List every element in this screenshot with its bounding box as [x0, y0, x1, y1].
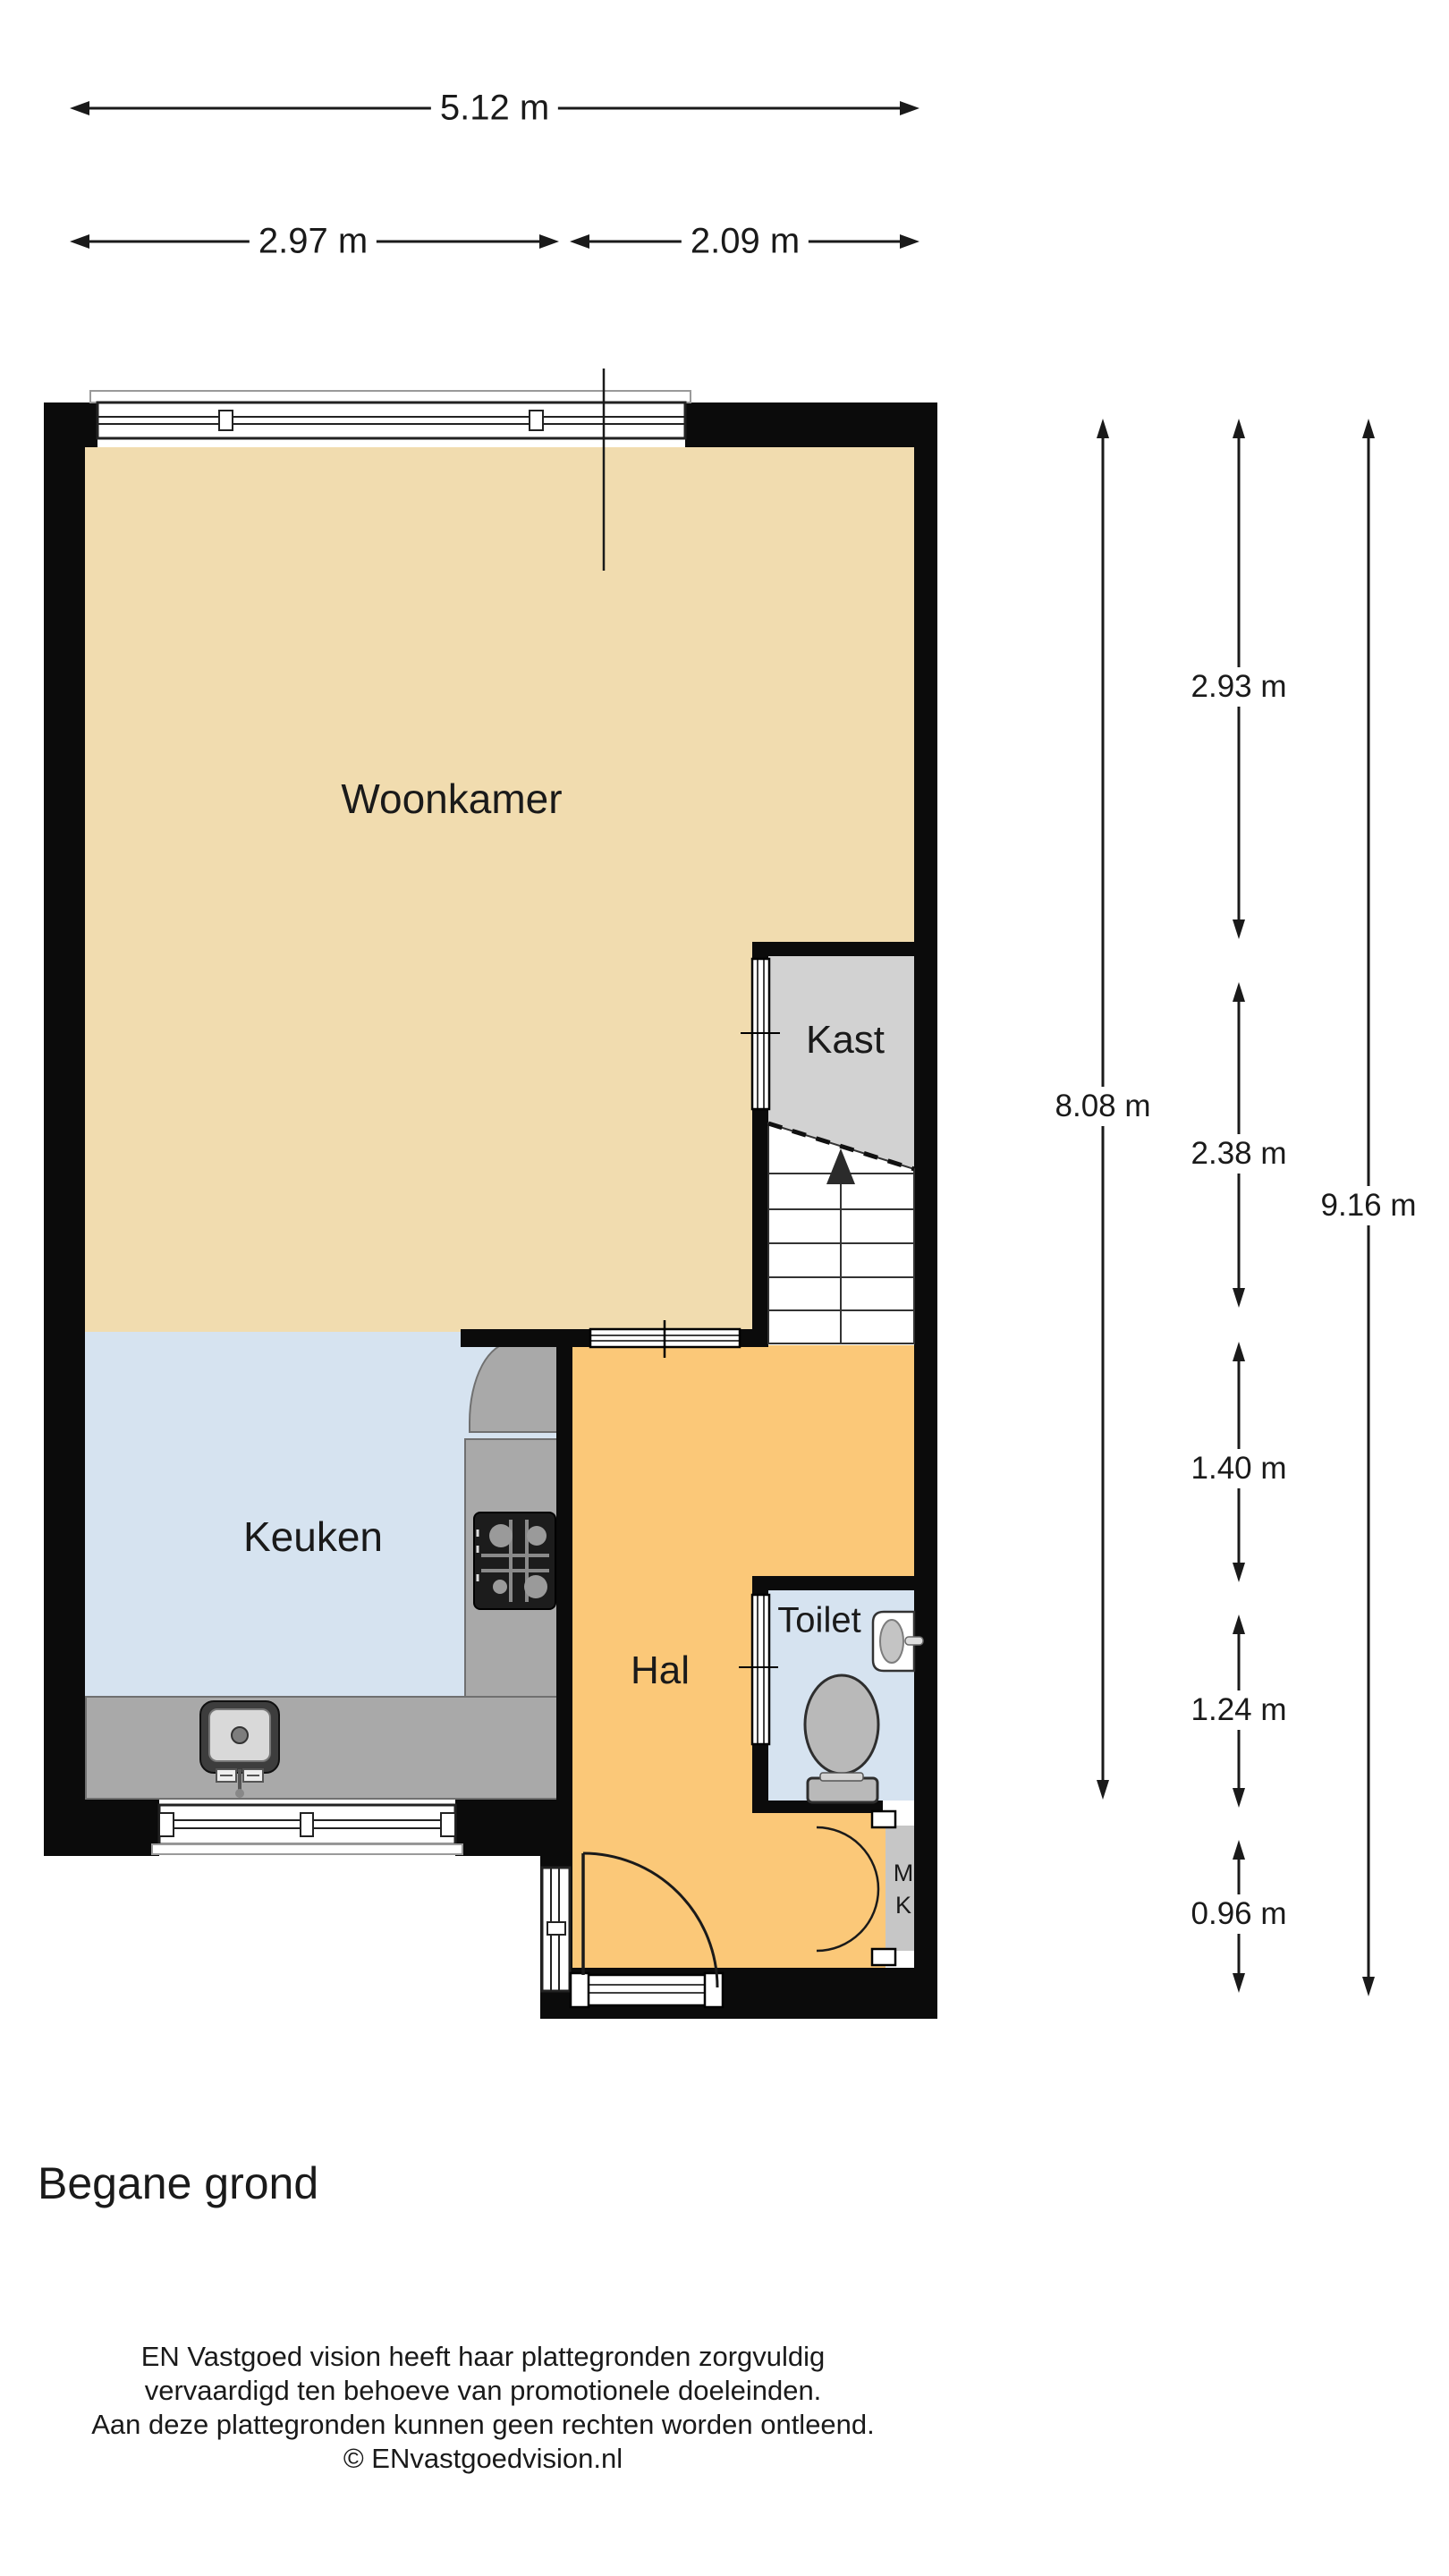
toilet-label: Toilet — [777, 1601, 860, 1641]
meterkast-label-k: K — [894, 1889, 914, 1921]
disclaimer-line-2: vervaardigd ten behoeve van promotionele… — [0, 2374, 966, 2408]
dim-height-total-outer: 9.16 m — [1312, 1186, 1426, 1225]
hal-label: Hal — [631, 1648, 690, 1693]
keuken-label: Keuken — [243, 1513, 383, 1561]
dim-seg-140: 1.40 m — [1182, 1449, 1296, 1488]
dim-top-left: 2.97 m — [250, 220, 377, 264]
kitchen-sink-icon — [200, 1701, 279, 1798]
floor-title: Begane grond — [38, 2157, 318, 2209]
dim-seg-238: 2.38 m — [1182, 1134, 1296, 1174]
entry-side-window — [542, 1868, 570, 1991]
woonkamer-label: Woonkamer — [341, 775, 562, 823]
front-door — [571, 1853, 723, 2007]
disclaimer-line-3: Aan deze plattegronden kunnen geen recht… — [0, 2408, 966, 2442]
dim-top-right: 2.09 m — [682, 220, 809, 264]
woonkamer-hal-opening — [590, 1320, 740, 1358]
stove-icon — [474, 1513, 555, 1609]
kitchen-bottom-window — [152, 1805, 462, 1854]
dim-seg-124: 1.24 m — [1182, 1690, 1296, 1730]
disclaimer-line-4: © ENvastgoedvision.nl — [0, 2442, 966, 2476]
meterkast-label: M K — [894, 1857, 914, 1921]
dim-seg-096: 0.96 m — [1182, 1894, 1296, 1934]
kast-label: Kast — [806, 1018, 885, 1063]
toilet-handbasin-icon — [873, 1612, 923, 1671]
top-window — [90, 391, 691, 438]
disclaimer-line-1: EN Vastgoed vision heeft haar plattegron… — [0, 2340, 966, 2374]
dim-top-total: 5.12 m — [431, 87, 558, 131]
meterkast-doors — [817, 1811, 895, 1965]
floorplan-page: Woonkamer Kast Keuken Hal Toilet M K 5.1… — [0, 0, 1449, 2576]
toilet-icon — [805, 1675, 878, 1802]
toilet-door — [739, 1595, 778, 1744]
dimension-col-segments — [1233, 419, 1245, 1993]
meterkast-label-m: M — [894, 1857, 914, 1889]
dim-seg-293: 2.93 m — [1182, 667, 1296, 707]
dim-height-total-inner: 8.08 m — [1046, 1087, 1160, 1126]
disclaimer-footer: EN Vastgoed vision heeft haar plattegron… — [0, 2340, 966, 2476]
